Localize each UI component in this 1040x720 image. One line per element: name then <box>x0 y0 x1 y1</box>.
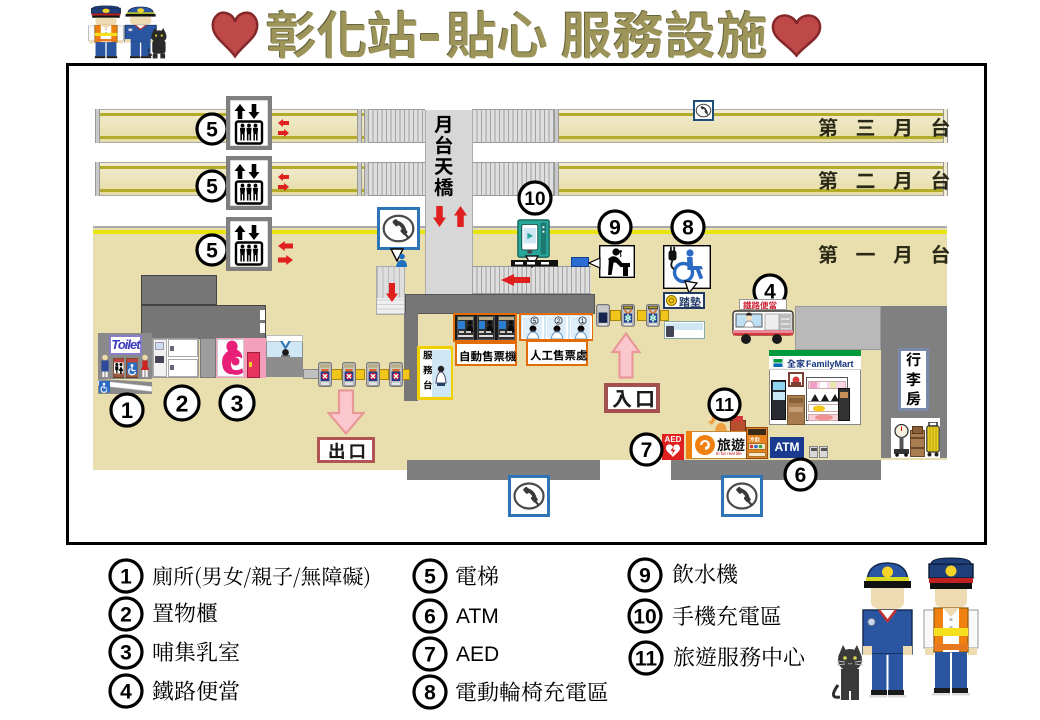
svg-text:9: 9 <box>639 564 651 587</box>
svg-text:1: 1 <box>120 566 132 589</box>
svg-text:10: 10 <box>524 189 545 210</box>
svg-text:6: 6 <box>794 464 806 487</box>
svg-text:5: 5 <box>424 566 436 589</box>
svg-text:5: 5 <box>206 176 218 199</box>
svg-text:5: 5 <box>206 119 218 142</box>
svg-text:6: 6 <box>424 605 436 628</box>
svg-text:2: 2 <box>176 390 189 416</box>
svg-text:10: 10 <box>633 606 656 629</box>
svg-text:2: 2 <box>120 603 132 626</box>
svg-text:8: 8 <box>424 682 436 705</box>
svg-text:1: 1 <box>121 398 133 423</box>
svg-text:8: 8 <box>682 217 694 240</box>
svg-text:3: 3 <box>231 390 244 416</box>
svg-text:3: 3 <box>120 642 132 665</box>
svg-text:11: 11 <box>634 647 657 670</box>
svg-text:4: 4 <box>120 681 132 704</box>
svg-text:7: 7 <box>640 439 652 462</box>
svg-text:11: 11 <box>714 394 733 414</box>
svg-text:9: 9 <box>609 217 621 240</box>
svg-text:7: 7 <box>424 643 436 666</box>
svg-text:5: 5 <box>206 240 218 263</box>
